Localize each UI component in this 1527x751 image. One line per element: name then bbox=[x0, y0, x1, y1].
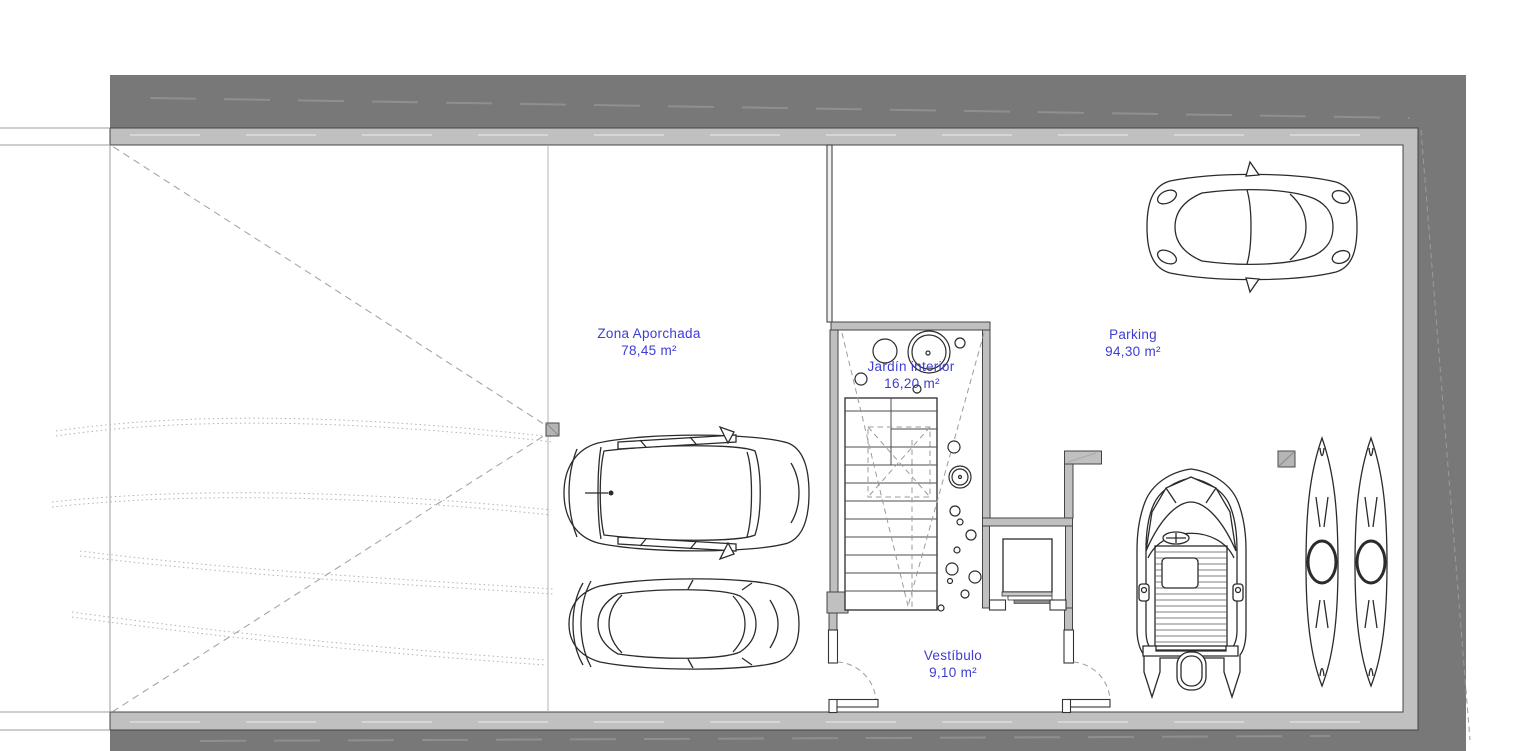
zone-name: Jardín interior bbox=[867, 359, 954, 374]
zone-area: 94,30 m² bbox=[1105, 344, 1161, 359]
garden-stone bbox=[946, 563, 958, 575]
elevator-wall-right bbox=[1066, 526, 1073, 608]
zone-name: Parking bbox=[1109, 327, 1157, 342]
vestibule-wall-right bbox=[1065, 608, 1073, 630]
car-mirror bbox=[1246, 278, 1259, 292]
contour-line bbox=[52, 493, 551, 510]
boat-dinghy-top-view bbox=[1137, 469, 1246, 697]
garden-stone bbox=[954, 547, 960, 553]
garden-stone bbox=[950, 506, 960, 516]
kayak-top-view bbox=[1355, 438, 1387, 686]
vestibule-wall-left bbox=[829, 613, 837, 630]
column-marker bbox=[546, 423, 559, 436]
door-swing-arc bbox=[838, 662, 877, 701]
door-leaf-open bbox=[1064, 630, 1074, 663]
garden-stone bbox=[938, 605, 944, 611]
zone-area: 9,10 m² bbox=[929, 665, 977, 680]
contour-line bbox=[72, 612, 545, 660]
garden-stone bbox=[969, 571, 981, 583]
sight-line bbox=[112, 430, 553, 712]
terrain-and-sightlines bbox=[52, 145, 559, 712]
elevator-door-leaf bbox=[1008, 596, 1052, 600]
elevator-jamb bbox=[1050, 600, 1066, 610]
door-swing-arc bbox=[1074, 662, 1111, 701]
garden-stone bbox=[961, 590, 969, 598]
elevator-wall-left bbox=[983, 526, 990, 608]
zone-area: 16,20 m² bbox=[884, 376, 940, 391]
elevator-car bbox=[1003, 539, 1052, 592]
zone-name: Zona Aporchada bbox=[597, 326, 700, 341]
column-marker bbox=[1278, 451, 1295, 467]
interior-wall bbox=[827, 145, 832, 322]
door-leaf-closed bbox=[1068, 700, 1110, 708]
elevator bbox=[990, 539, 1067, 610]
contour-line bbox=[80, 551, 553, 589]
contour-line bbox=[56, 423, 553, 442]
garden-wall-right bbox=[983, 330, 991, 518]
kayak-cockpit bbox=[1308, 541, 1336, 583]
elevator-door-leaf bbox=[1014, 600, 1052, 604]
boat-seat-box bbox=[1162, 558, 1198, 588]
floor-plan-canvas: Zona Aporchada 78,45 m² Parking 94,30 m²… bbox=[0, 0, 1527, 751]
garden-planter-dot bbox=[959, 476, 962, 479]
contour-line bbox=[72, 617, 545, 665]
sight-line bbox=[112, 146, 553, 430]
door-hinge-jamb bbox=[1063, 700, 1071, 713]
garden-stone bbox=[957, 519, 963, 525]
door-leaf-open bbox=[829, 630, 838, 663]
car-wagon-top-view bbox=[564, 427, 809, 559]
zone-area: 78,45 m² bbox=[621, 343, 677, 358]
garden-wall-top bbox=[831, 322, 990, 330]
contour-line bbox=[52, 498, 551, 515]
elevator-wall-top bbox=[983, 518, 1073, 526]
garden-wall-left bbox=[830, 330, 838, 592]
elevator-jamb bbox=[990, 600, 1006, 610]
door-hinge-jamb bbox=[829, 700, 837, 713]
car-sedan-top-view bbox=[569, 579, 799, 669]
garden-planter-dot bbox=[926, 351, 930, 355]
garden-stone bbox=[948, 579, 953, 584]
site-band-right bbox=[1418, 75, 1466, 751]
car-mirror bbox=[1246, 162, 1259, 176]
contour-line bbox=[80, 556, 553, 594]
car-body bbox=[569, 579, 799, 669]
l-wall-stem bbox=[1065, 464, 1074, 518]
floor-plan-drawing: Zona Aporchada 78,45 m² Parking 94,30 m²… bbox=[0, 0, 1527, 751]
garden-stone bbox=[955, 338, 965, 348]
garden-stone bbox=[966, 530, 976, 540]
kayak-top-view bbox=[1306, 438, 1338, 686]
elevator-door-track bbox=[1002, 592, 1052, 596]
zone-name: Vestíbulo bbox=[924, 648, 982, 663]
car-sports-top-view bbox=[1147, 162, 1357, 292]
garden-stone bbox=[855, 373, 867, 385]
door-leaf-closed bbox=[836, 700, 878, 708]
car-antenna-dot bbox=[609, 491, 614, 496]
garden-stone bbox=[948, 441, 960, 453]
kayak-cockpit bbox=[1357, 541, 1385, 583]
